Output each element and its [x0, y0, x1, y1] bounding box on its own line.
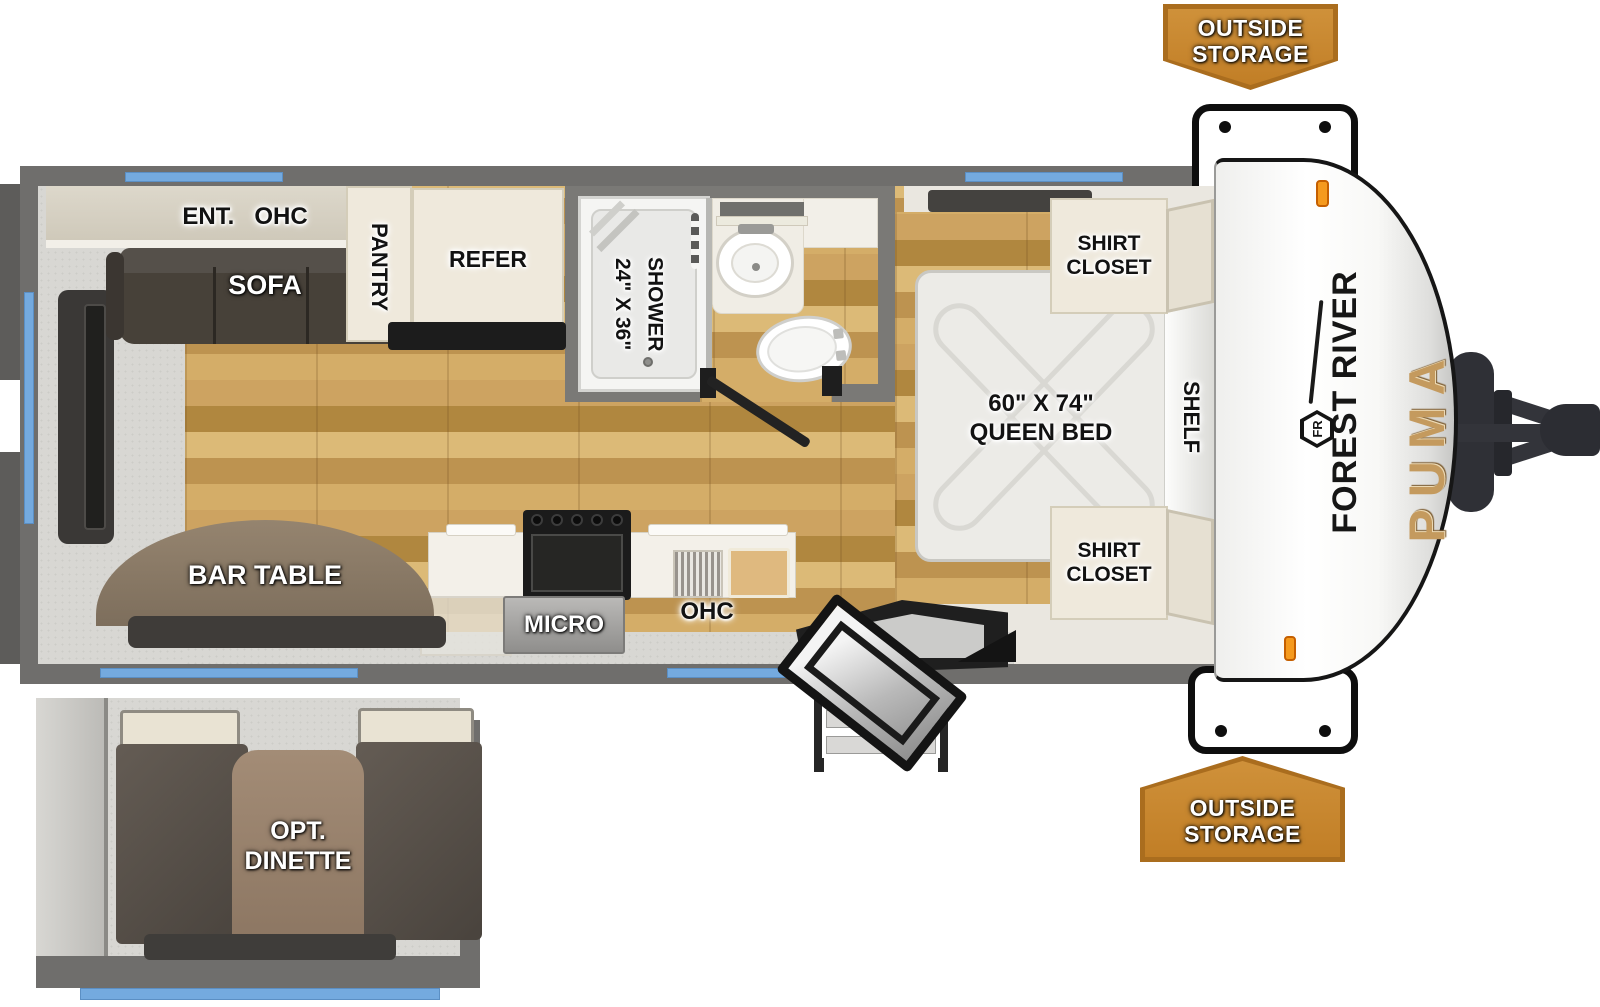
stove-glass: [531, 534, 623, 592]
dinette-label: OPT. DINETTE: [232, 816, 364, 876]
toilet-hinge: [836, 350, 847, 361]
shower-head-dots-icon: [691, 213, 699, 269]
faucet-icon: [738, 224, 774, 234]
dinette-inset: OPT. DINETTE: [36, 698, 480, 1002]
ohc-label: OHC: [642, 598, 772, 626]
outside-storage-top-label: OUTSIDE STORAGE: [1163, 16, 1338, 68]
shirt-closet-bottom-label: SHIRT CLOSET: [1050, 506, 1168, 620]
shelf-label: SHELF: [1164, 276, 1218, 558]
dinette-base: [144, 934, 396, 960]
sink: [716, 228, 794, 298]
marker-light-bottom-icon: [1284, 636, 1296, 661]
vanity-shelf: [720, 202, 804, 216]
floorplan-canvas: ENT. OHC SOFA PANTRY REFER 24" X 36" SHO…: [0, 0, 1600, 1007]
hitch-bar: [1452, 424, 1548, 442]
window-top-left: [125, 172, 283, 182]
window-rear: [24, 292, 34, 524]
ent-ohc-label: ENT. OHC: [140, 203, 350, 231]
bar-table-label: BAR TABLE: [120, 560, 410, 591]
stove-knob-icon: [571, 514, 583, 526]
queen-bed-label: 60" X 74" QUEEN BED: [915, 390, 1167, 448]
stove-knob-icon: [531, 514, 543, 526]
dinette-bench-left: [116, 744, 248, 944]
shirt-closet-top-label: SHIRT CLOSET: [1050, 198, 1168, 314]
stove: [523, 510, 631, 600]
window-bottom-left: [100, 668, 358, 678]
sofa-armrest: [106, 252, 124, 340]
dinette-bench-right: [356, 742, 482, 940]
rear-bumper-upper: [0, 184, 20, 380]
bathroom-door-stop: [822, 366, 842, 396]
step-foot: [814, 758, 824, 772]
micro-label: MICRO: [503, 596, 625, 654]
stove-knob-icon: [551, 514, 563, 526]
counter-lip: [446, 524, 516, 536]
bar-bench: [128, 616, 446, 648]
outside-storage-banner-bottom: OUTSIDE STORAGE: [1140, 756, 1345, 862]
rack-bolt-icon: [1219, 121, 1231, 133]
shower-label: 24" X 36" SHOWER: [600, 222, 676, 386]
toilet-hinge: [833, 328, 844, 339]
forest-river-wordmark: FOREST RIVER: [1326, 232, 1364, 572]
tv-screen: [84, 304, 106, 530]
dinette-window: [80, 988, 440, 1000]
cutting-board: [728, 548, 790, 598]
step-foot: [938, 758, 948, 772]
rack-bolt-icon: [1319, 725, 1331, 737]
puma-wordmark: PUMA: [1398, 325, 1450, 565]
refer-label: REFER: [412, 188, 564, 330]
vent-grille: [673, 550, 723, 598]
dinette-left-wall: [36, 698, 108, 988]
outside-storage-bottom-label: OUTSIDE STORAGE: [1140, 796, 1345, 848]
marker-light-top-icon: [1316, 180, 1329, 207]
rack-bolt-icon: [1215, 725, 1227, 737]
stove-knob-icon: [591, 514, 603, 526]
counter-lip: [648, 524, 788, 536]
sink-drain-icon: [752, 263, 760, 271]
rear-bumper-lower: [0, 452, 20, 664]
sofa-label: SOFA: [180, 270, 350, 301]
window-top-right: [965, 172, 1123, 182]
pantry-label: PANTRY: [350, 200, 408, 334]
rack-bolt-icon: [1319, 121, 1331, 133]
hitch-coupler: [1540, 404, 1600, 456]
stove-knob-icon: [611, 514, 623, 526]
dinette-bottom-wall: [36, 956, 480, 988]
dinette-headrest-right: [358, 708, 474, 746]
outside-storage-banner-top: OUTSIDE STORAGE: [1163, 4, 1338, 90]
